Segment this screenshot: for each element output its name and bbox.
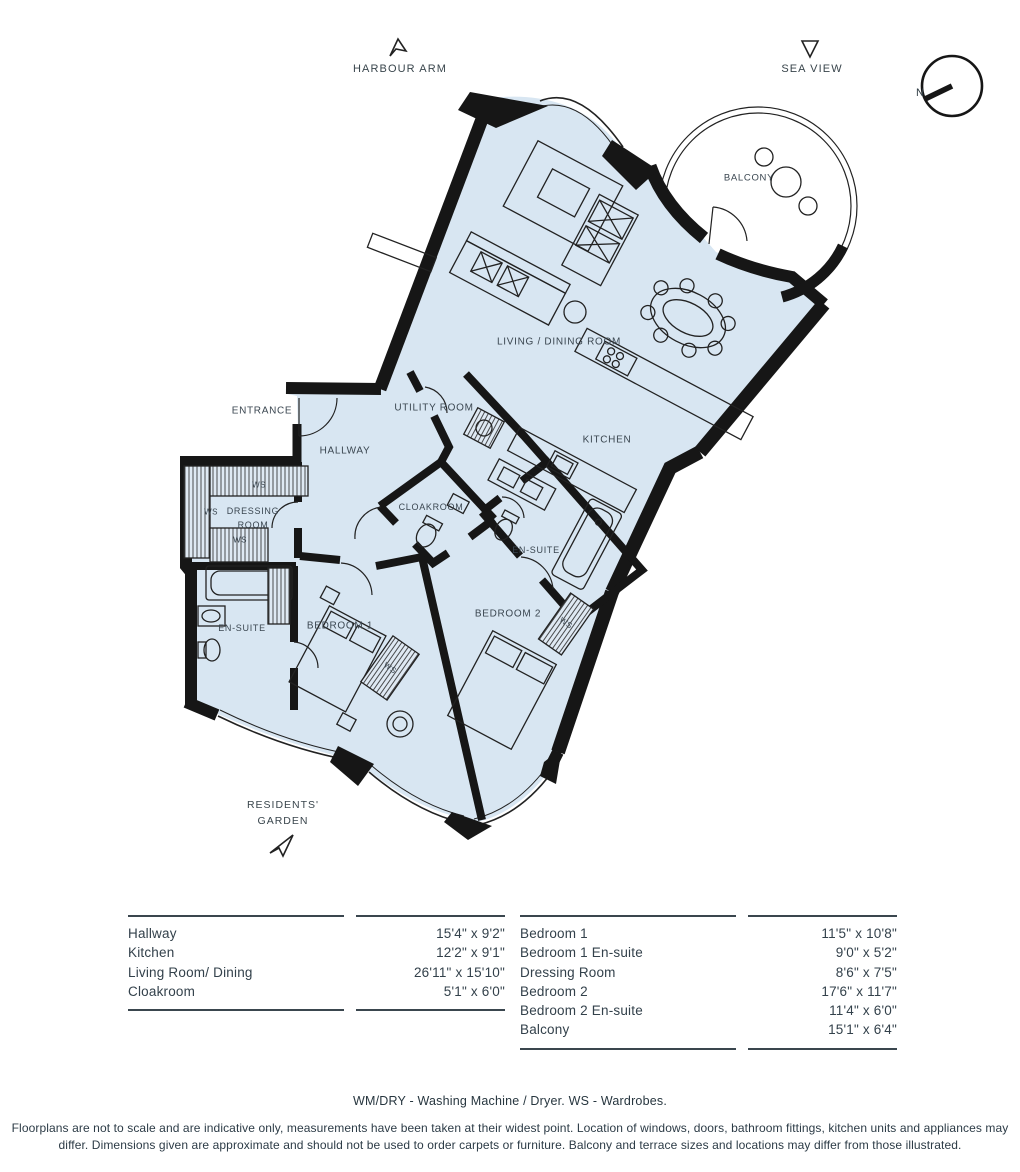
table-row: Bedroom 1 En-suite9'0" x 5'2" — [520, 943, 897, 962]
sea-view-arrow-icon — [798, 36, 824, 62]
room-label-living: LIVING / DINING ROOM — [497, 337, 621, 348]
room-label-cloakroom: CLOAKROOM — [399, 502, 464, 512]
abbreviations-legend: WM/DRY - Washing Machine / Dryer. WS - W… — [0, 1094, 1020, 1108]
sea-view-label: SEA VIEW — [781, 63, 842, 75]
table-row: Cloakroom5'1" x 6'0" — [128, 982, 505, 1001]
compass-north-label: N — [916, 87, 924, 99]
room-label-kitchen: KITCHEN — [583, 435, 632, 446]
table-row: Bedroom 111'5" x 10'8" — [520, 924, 897, 943]
table-rule-top — [128, 915, 505, 917]
table-row: Bedroom 2 En-suite11'4" x 6'0" — [520, 1001, 897, 1020]
room-label-utility: UTILITY ROOM — [394, 403, 473, 414]
ws-label-dressing-top: WS — [252, 481, 266, 490]
table-row: Balcony15'1" x 6'4" — [520, 1020, 897, 1039]
compass-icon — [913, 48, 993, 128]
harbour-arm-arrow-icon — [385, 36, 411, 62]
table-row: Living Room/ Dining26'11" x 15'10" — [128, 963, 505, 982]
table-row: Hallway15'4" x 9'2" — [128, 924, 505, 943]
dimensions-table-right: Bedroom 111'5" x 10'8" Bedroom 1 En-suit… — [520, 915, 897, 1050]
disclaimer-text: Floorplans are not to scale and are indi… — [10, 1120, 1010, 1153]
floorplan-page: HARBOUR ARM SEA VIEW N RESIDENTS' GARDEN… — [0, 0, 1020, 1172]
room-label-dressing-1: DRESSING — [227, 506, 280, 516]
table-rule-bottom — [128, 1009, 505, 1011]
room-label-bedroom-1: BEDROOM 1 — [307, 621, 373, 632]
residents-garden-arrow-icon — [266, 830, 298, 860]
table-row: Bedroom 217'6" x 11'7" — [520, 982, 897, 1001]
room-label-bedroom-2: BEDROOM 2 — [475, 609, 541, 620]
residents-garden-label: RESIDENTS' GARDEN — [247, 797, 319, 829]
harbour-arm-label: HARBOUR ARM — [353, 63, 447, 75]
table-rule-bottom — [520, 1048, 897, 1050]
room-label-dressing-2: ROOM — [238, 520, 269, 530]
room-label-ensuite-2: EN-SUITE — [512, 545, 560, 555]
room-label-hallway: HALLWAY — [320, 446, 371, 457]
ws-label-dressing-left: WS — [204, 508, 218, 517]
table-row: Dressing Room8'6" x 7'5" — [520, 963, 897, 982]
ws-label-dressing-bottom: WS — [233, 536, 247, 545]
table-rule-top — [520, 915, 897, 917]
table-row: Kitchen12'2" x 9'1" — [128, 943, 505, 962]
room-label-balcony: BALCONY — [724, 173, 774, 184]
room-label-ensuite-1: EN-SUITE — [218, 623, 266, 633]
room-label-entrance: ENTRANCE — [232, 406, 293, 417]
dimensions-table-left: Hallway15'4" x 9'2" Kitchen12'2" x 9'1" … — [128, 915, 505, 1011]
